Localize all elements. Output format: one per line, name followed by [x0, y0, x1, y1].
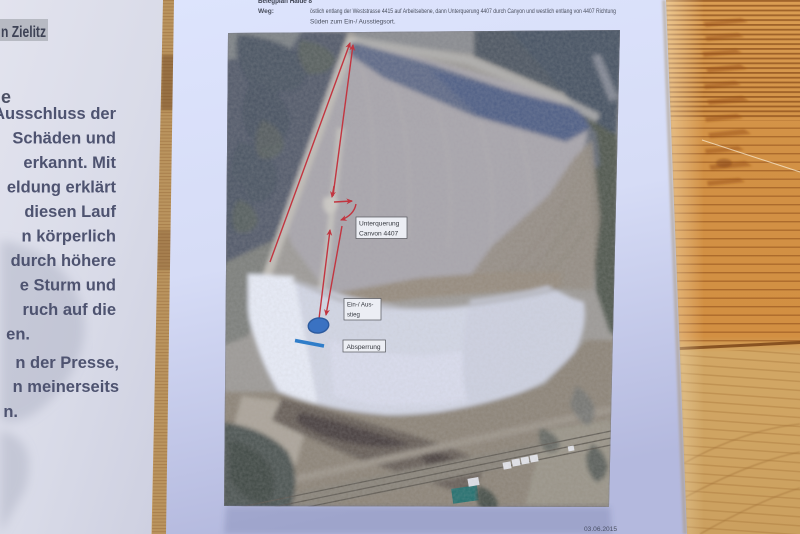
svg-text:eldung erklärt: eldung erklärt: [7, 179, 117, 197]
svg-text:erkannt. Mit: erkannt. Mit: [23, 154, 116, 172]
svg-text:durch höhere: durch höhere: [11, 252, 116, 270]
svg-text:e Sturm und: e Sturm und: [20, 277, 116, 295]
svg-text:stieg: stieg: [347, 312, 360, 319]
svg-text:n Zielitz: n Zielitz: [1, 24, 46, 41]
svg-text:Ein-/ Aus-: Ein-/ Aus-: [347, 302, 373, 309]
svg-text:Weg:: Weg:: [258, 8, 274, 15]
svg-text:Belegplan Halde 8: Belegplan Halde 8: [258, 0, 312, 5]
svg-text:n meinerseits: n meinerseits: [13, 378, 119, 396]
svg-text:Ausschluss der: Ausschluss der: [0, 105, 117, 123]
svg-text:n körperlich: n körperlich: [22, 228, 116, 246]
svg-text:n.: n.: [3, 403, 18, 421]
svg-text:e: e: [1, 87, 11, 107]
svg-text:diesen Lauf: diesen Lauf: [24, 203, 116, 221]
svg-text:en.: en.: [6, 326, 30, 344]
svg-text:Absperrung: Absperrung: [347, 344, 381, 351]
svg-text:Canvon 4407: Canvon 4407: [359, 231, 399, 238]
svg-text:Süden zum Ein-/ Ausstiegsort.: Süden zum Ein-/ Ausstiegsort.: [310, 19, 396, 26]
svg-text:Unterquerung: Unterquerung: [359, 221, 400, 228]
svg-text:n der Presse,: n der Presse,: [15, 354, 119, 372]
svg-text:Schäden und: Schäden und: [12, 130, 116, 148]
svg-text:ruch auf die: ruch auf die: [22, 301, 116, 319]
svg-text:östlich entlang der Weststrass: östlich entlang der Weststrasse 4415 auf…: [310, 8, 616, 15]
